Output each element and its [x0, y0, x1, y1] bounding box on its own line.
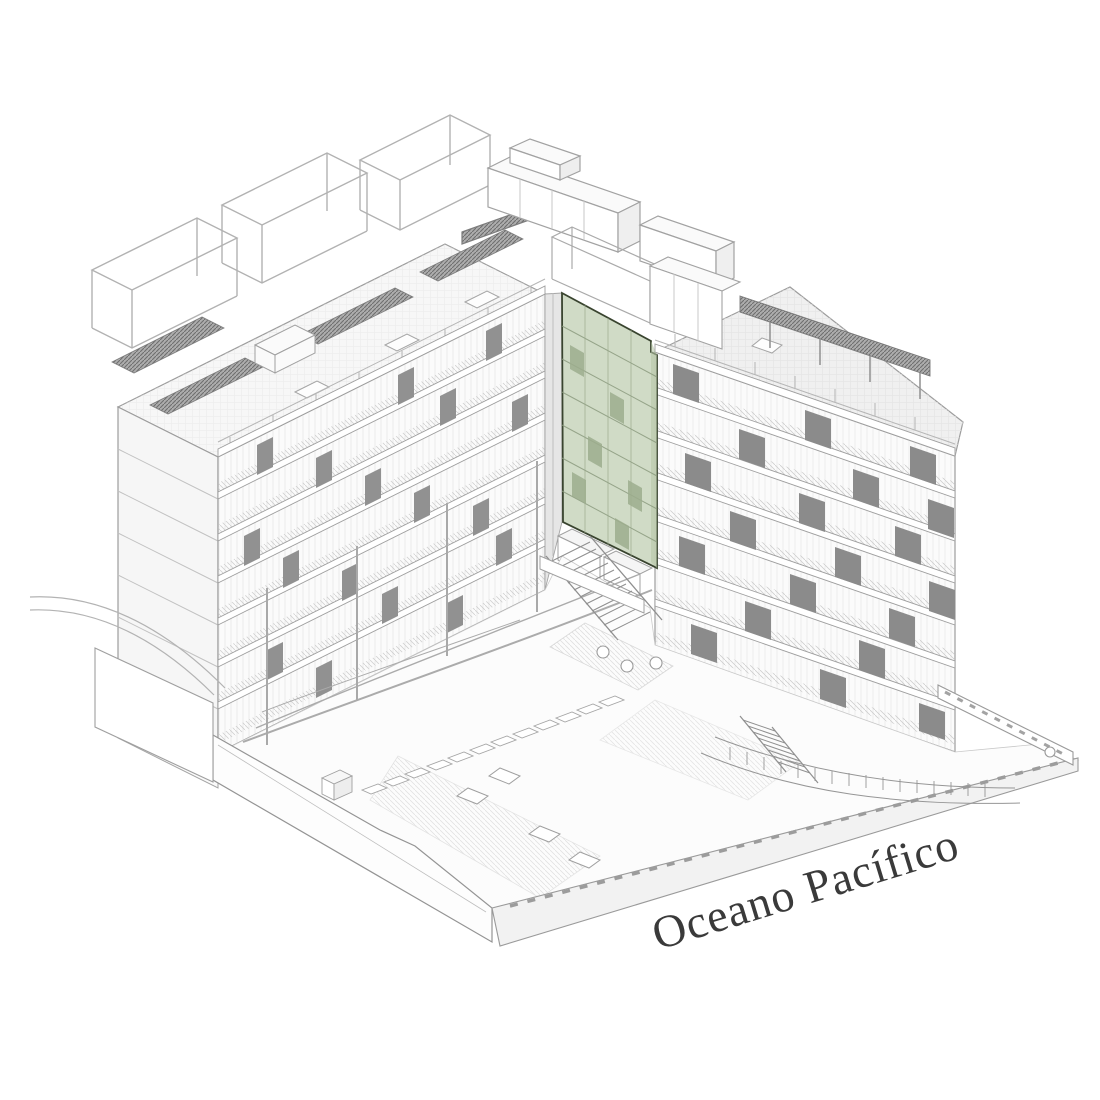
axonometric-site-drawing: Oceano Pacífico	[0, 0, 1100, 1100]
penthouse-volumes	[462, 139, 734, 287]
promenade-detail-circle	[1045, 747, 1055, 757]
highlighted-corner-facade	[562, 293, 657, 568]
highlight-panel	[562, 293, 657, 568]
site-axonometric-svg: Oceano Pacífico	[0, 0, 1100, 1100]
